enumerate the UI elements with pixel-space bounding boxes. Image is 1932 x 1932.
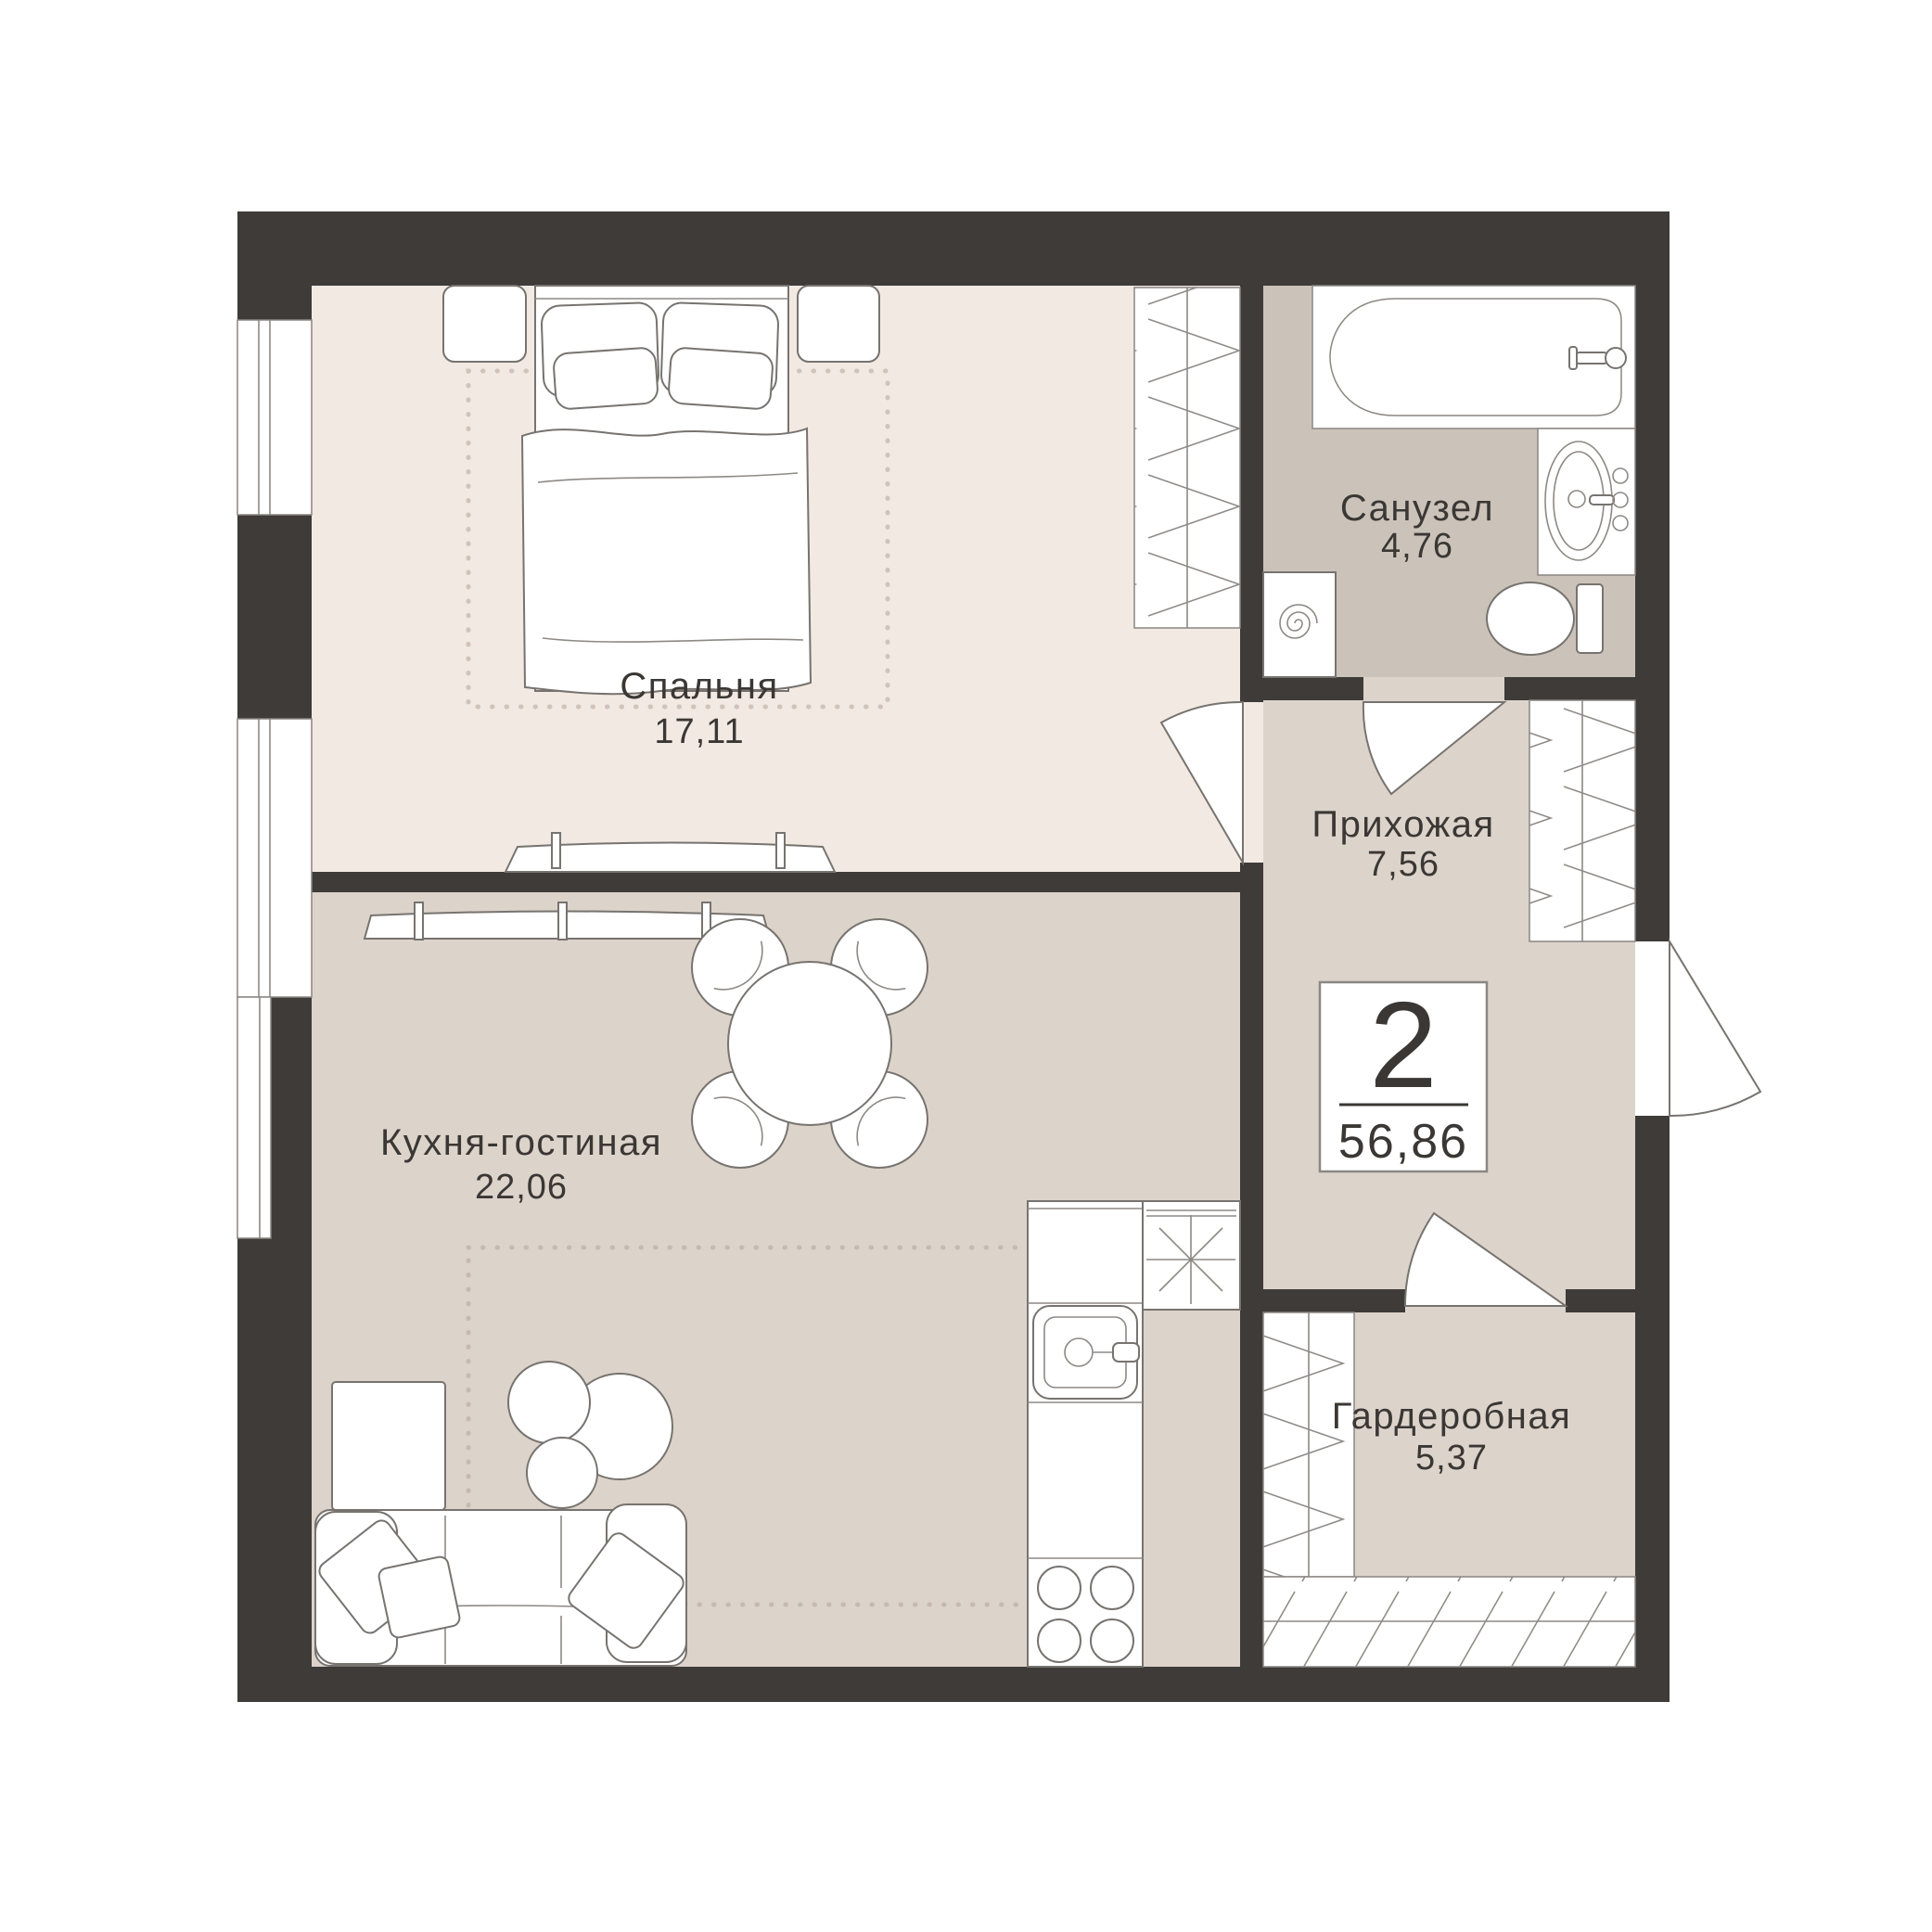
window-frame (237, 320, 312, 515)
wardrobe-rail-left (1263, 1312, 1354, 1577)
bathtub (1312, 286, 1635, 429)
entrance-door-gap (1635, 941, 1670, 1116)
tv-leg (558, 902, 567, 940)
room-name: Спальня (620, 666, 778, 707)
fridge (1143, 1201, 1240, 1310)
room-name: Гардеробная (1332, 1396, 1571, 1437)
room-name: Санузел (1340, 488, 1494, 529)
room-area: 22,06 (475, 1168, 568, 1207)
balcony-glazing-strip (237, 997, 271, 1238)
blanket (522, 429, 811, 694)
toilet-tank (1577, 584, 1603, 653)
tv-leg (776, 833, 785, 868)
sink-faucet (1590, 495, 1614, 505)
badge-total-area: 56,86 (1338, 1115, 1468, 1169)
room-area: 7,56 (1367, 845, 1439, 884)
wall-center-vertical-upper (1240, 286, 1263, 702)
living-window (237, 719, 312, 997)
wall-bathroom-left (1263, 677, 1363, 700)
window-frame (237, 997, 271, 1238)
coffee-table (527, 1438, 597, 1508)
faucet-body (1113, 1343, 1139, 1362)
bedroom-window (237, 320, 312, 515)
bathroom-door-gap (1363, 677, 1504, 700)
room-name: Прихожая (1311, 804, 1494, 845)
tub-faucet-stem (1575, 352, 1608, 364)
hallway-closet (1529, 700, 1635, 941)
side-table (332, 1382, 445, 1510)
room-area: 4,76 (1381, 527, 1453, 566)
bedroom-closet (1134, 288, 1240, 628)
sofa (315, 1504, 687, 1666)
wall-right-upper (1635, 211, 1670, 941)
window-frame (237, 719, 312, 997)
room-name: Кухня-гостиная (380, 1122, 662, 1163)
wall-top (237, 211, 1670, 286)
pillow (668, 347, 774, 410)
pillow-shape (377, 1555, 461, 1639)
burner (1091, 1619, 1133, 1662)
sofa-pillow (377, 1555, 461, 1639)
burner (1038, 1619, 1081, 1662)
tub-faucet-knob (1569, 347, 1577, 369)
burner (1038, 1567, 1081, 1609)
apartment-badge: 2 56,86 (1320, 977, 1487, 1171)
badge-rooms-count: 2 (1369, 977, 1437, 1113)
wall-bathroom-right (1504, 677, 1635, 700)
tv-leg (552, 833, 560, 868)
sink-cabinet (1538, 429, 1635, 575)
kitchen-sink (1033, 1306, 1139, 1399)
fridge-asterisk-icon (1146, 1215, 1235, 1304)
wardrobe-shelf-bottom (1263, 1577, 1635, 1667)
hallway-fixtures (1529, 700, 1635, 941)
room-area: 5,37 (1415, 1439, 1488, 1478)
washer-body (1263, 572, 1336, 677)
nightstand-right (798, 286, 879, 362)
dining-table (728, 962, 891, 1125)
bathroom-sink (1538, 429, 1635, 575)
wall-wardrobe-right (1566, 1289, 1635, 1312)
bed (522, 286, 811, 694)
washing-machine (1263, 572, 1336, 677)
wall-bottom (237, 1667, 1670, 1702)
coffee-table (508, 1362, 590, 1443)
wall-bedroom-kitchen (312, 872, 1263, 892)
toilet-bowl (1487, 582, 1574, 655)
toilet (1487, 582, 1603, 655)
wall-wardrobe-left (1263, 1289, 1405, 1312)
wall-center-vertical-lower (1240, 863, 1263, 1667)
kitchen-counter (1028, 1201, 1143, 1667)
tub-faucet-head (1606, 348, 1626, 368)
nightstand-left (443, 286, 526, 362)
entrance-door (1670, 941, 1760, 1116)
pillow (553, 347, 659, 410)
room-area: 17,11 (654, 712, 744, 751)
tv-leg (415, 902, 423, 940)
wall-right-lower (1635, 1116, 1670, 1702)
floor-plan: Спальня 17,11 Кухня-гостиная 22,06 Сануз… (0, 0, 1932, 1932)
burner (1091, 1567, 1133, 1609)
